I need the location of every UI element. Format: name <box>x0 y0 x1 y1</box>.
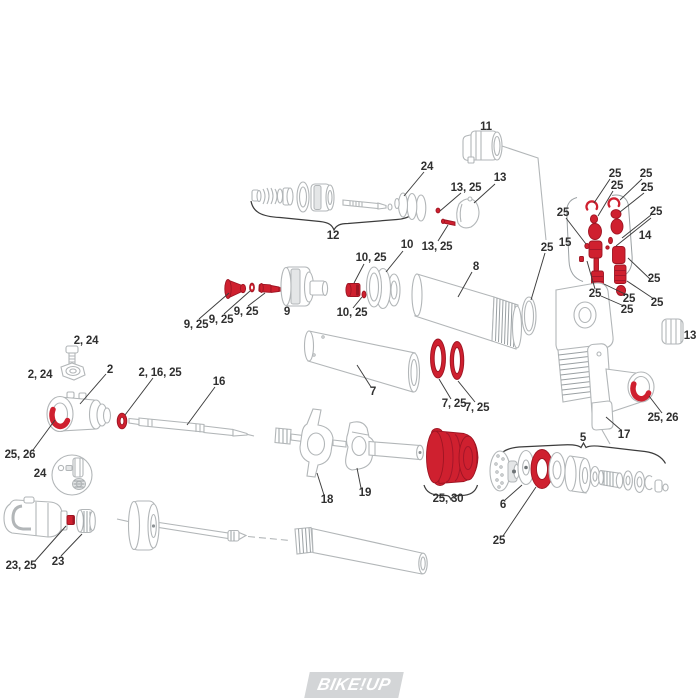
exploded-parts-diagram: 241213, 251313, 251125252525252515142525… <box>0 0 700 700</box>
leader-line <box>598 191 613 216</box>
part-callout-25: 25 <box>611 180 624 192</box>
part-18-mount <box>275 409 333 477</box>
part-callout-25: 25 <box>557 207 570 219</box>
part-5-damper-stack <box>490 443 668 493</box>
part-callout-17: 17 <box>618 429 630 441</box>
part-2-16-25-o-ring <box>117 413 127 429</box>
part-2-24-bolt <box>66 346 78 365</box>
part-callout-7-25: 7, 25 <box>442 398 467 410</box>
leader-line <box>354 264 364 283</box>
part-callout-9-25: 9, 25 <box>209 314 234 326</box>
part-callout-7: 7 <box>370 386 376 398</box>
leader-line <box>357 468 361 488</box>
part-19-mount <box>333 422 423 470</box>
part-callout-25: 25 <box>650 206 663 218</box>
part-25-o-ring-gray <box>522 297 536 335</box>
part-2-eyelet <box>47 392 111 432</box>
part-callout-25: 25 <box>493 535 506 547</box>
part-10-seal-head <box>367 267 401 309</box>
spring <box>263 188 277 204</box>
part-callout-10: 10 <box>401 239 413 251</box>
part-callout-13: 13 <box>684 330 696 342</box>
part-7-o-rings <box>431 339 464 380</box>
leader-line <box>386 251 403 272</box>
part-callout-5: 5 <box>580 432 587 444</box>
part-callout-25-26: 25, 26 <box>5 449 36 461</box>
part-callout-25: 25 <box>609 168 622 180</box>
part-11-cap <box>463 131 502 163</box>
part-callout-25: 25 <box>541 242 554 254</box>
part-callout-25: 25 <box>589 288 602 300</box>
part-callout-23: 23 <box>52 556 64 568</box>
part-25-30-piston <box>424 429 478 500</box>
leader-line <box>61 534 82 556</box>
part-callout-2-16-25: 2, 16, 25 <box>139 367 183 379</box>
leader-line <box>649 396 662 413</box>
part-callout-10-25: 10, 25 <box>337 307 369 319</box>
part-callout-25: 25 <box>651 297 664 309</box>
leader-line <box>531 253 545 300</box>
part-callout-9-25: 9, 25 <box>184 319 209 331</box>
part-callout-2-24: 2, 24 <box>74 335 99 347</box>
part-17-shock-body <box>556 283 654 444</box>
part-callout-9-25: 9, 25 <box>234 306 259 318</box>
part-14-valve-stack <box>606 195 632 295</box>
leader-line <box>438 225 448 241</box>
part-7-inner-tube <box>305 331 420 392</box>
part-callout-15: 15 <box>559 237 572 249</box>
leader-line <box>125 378 153 415</box>
leader-line <box>503 487 536 536</box>
part-callout-25: 25 <box>640 168 653 180</box>
perforated-disc <box>490 451 510 491</box>
part-callout-24: 24 <box>421 161 434 173</box>
part-callout-14: 14 <box>639 230 652 242</box>
part-16-shaft <box>129 418 254 436</box>
part-callout-25: 25 <box>641 182 654 194</box>
part-callout-8: 8 <box>473 261 480 273</box>
part-callout-23-25: 23, 25 <box>6 560 38 572</box>
part-callout-10-25: 10, 25 <box>356 252 388 264</box>
leader-line <box>33 420 55 450</box>
part-2-24-nut <box>61 363 85 380</box>
part-8-outer-tube <box>412 274 522 349</box>
leader-line <box>404 172 424 196</box>
part-13-hex-cap <box>662 319 683 344</box>
part-23-clevis-assembly <box>4 497 95 537</box>
watermark-logo: BIKE!UP <box>304 672 404 698</box>
part-callout-6: 6 <box>500 499 506 511</box>
part-callout-19: 19 <box>359 487 371 499</box>
part-callout-25: 25 <box>621 304 634 316</box>
leader-line <box>620 193 644 212</box>
leader-line <box>439 379 451 399</box>
part-callout-16: 16 <box>213 376 225 388</box>
part-callout-13-25: 13, 25 <box>451 182 483 194</box>
air-piston-and-shaft <box>129 501 247 550</box>
part-callout-2: 2 <box>107 364 113 376</box>
part-24-seal-stack <box>395 193 426 221</box>
part-callout-2-24: 2, 24 <box>28 369 53 381</box>
part-callout-25-30: 25, 30 <box>433 493 464 505</box>
leader-line <box>628 258 650 279</box>
part-callout-13: 13 <box>494 172 506 184</box>
part-24-detail-circle <box>52 455 92 495</box>
part-callout-13-25: 13, 25 <box>422 241 454 253</box>
part-13-service-pins <box>436 208 455 225</box>
leader-line <box>505 485 522 500</box>
part-callout-25: 25 <box>648 273 661 285</box>
part-callout-7-25: 7, 25 <box>465 402 490 414</box>
watermark-text: BIKE!UP <box>316 675 393 695</box>
part-9-piston <box>281 267 328 306</box>
part-callout-24: 24 <box>34 468 47 480</box>
part-callout-11: 11 <box>480 121 493 133</box>
leader-line <box>248 293 265 306</box>
part-callout-9: 9 <box>284 306 290 318</box>
lower-outer-tube <box>295 528 427 575</box>
diagram-page: 241213, 251313, 251125252525252515142525… <box>0 0 700 700</box>
leader-line <box>317 473 324 495</box>
part-callout-18: 18 <box>321 494 334 506</box>
part-callout-25-26: 25, 26 <box>648 412 679 424</box>
part-callout-12: 12 <box>327 230 339 242</box>
part-10-service-seals <box>346 284 366 298</box>
leader-line <box>187 387 215 425</box>
